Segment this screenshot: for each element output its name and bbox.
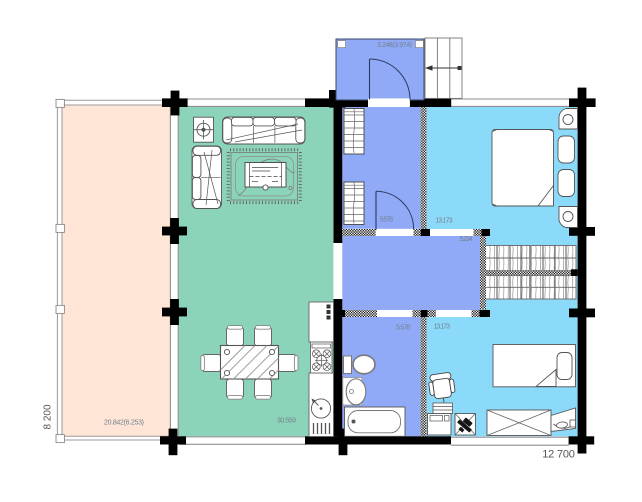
svg-text:20.842(6.253): 20.842(6.253) — [104, 420, 144, 427]
svg-text:5.234: 5.234 — [460, 236, 473, 243]
svg-text:13.173: 13.173 — [434, 324, 451, 331]
svg-text:13.173: 13.173 — [435, 218, 453, 225]
svg-text:30.559: 30.559 — [277, 418, 296, 425]
svg-text:5.578: 5.578 — [396, 325, 411, 332]
svg-text:3.248(3.974): 3.248(3.974) — [377, 42, 412, 49]
svg-text:12 700: 12 700 — [542, 449, 575, 461]
svg-text:5.578: 5.578 — [380, 217, 394, 224]
svg-text:8 200: 8 200 — [43, 404, 54, 429]
